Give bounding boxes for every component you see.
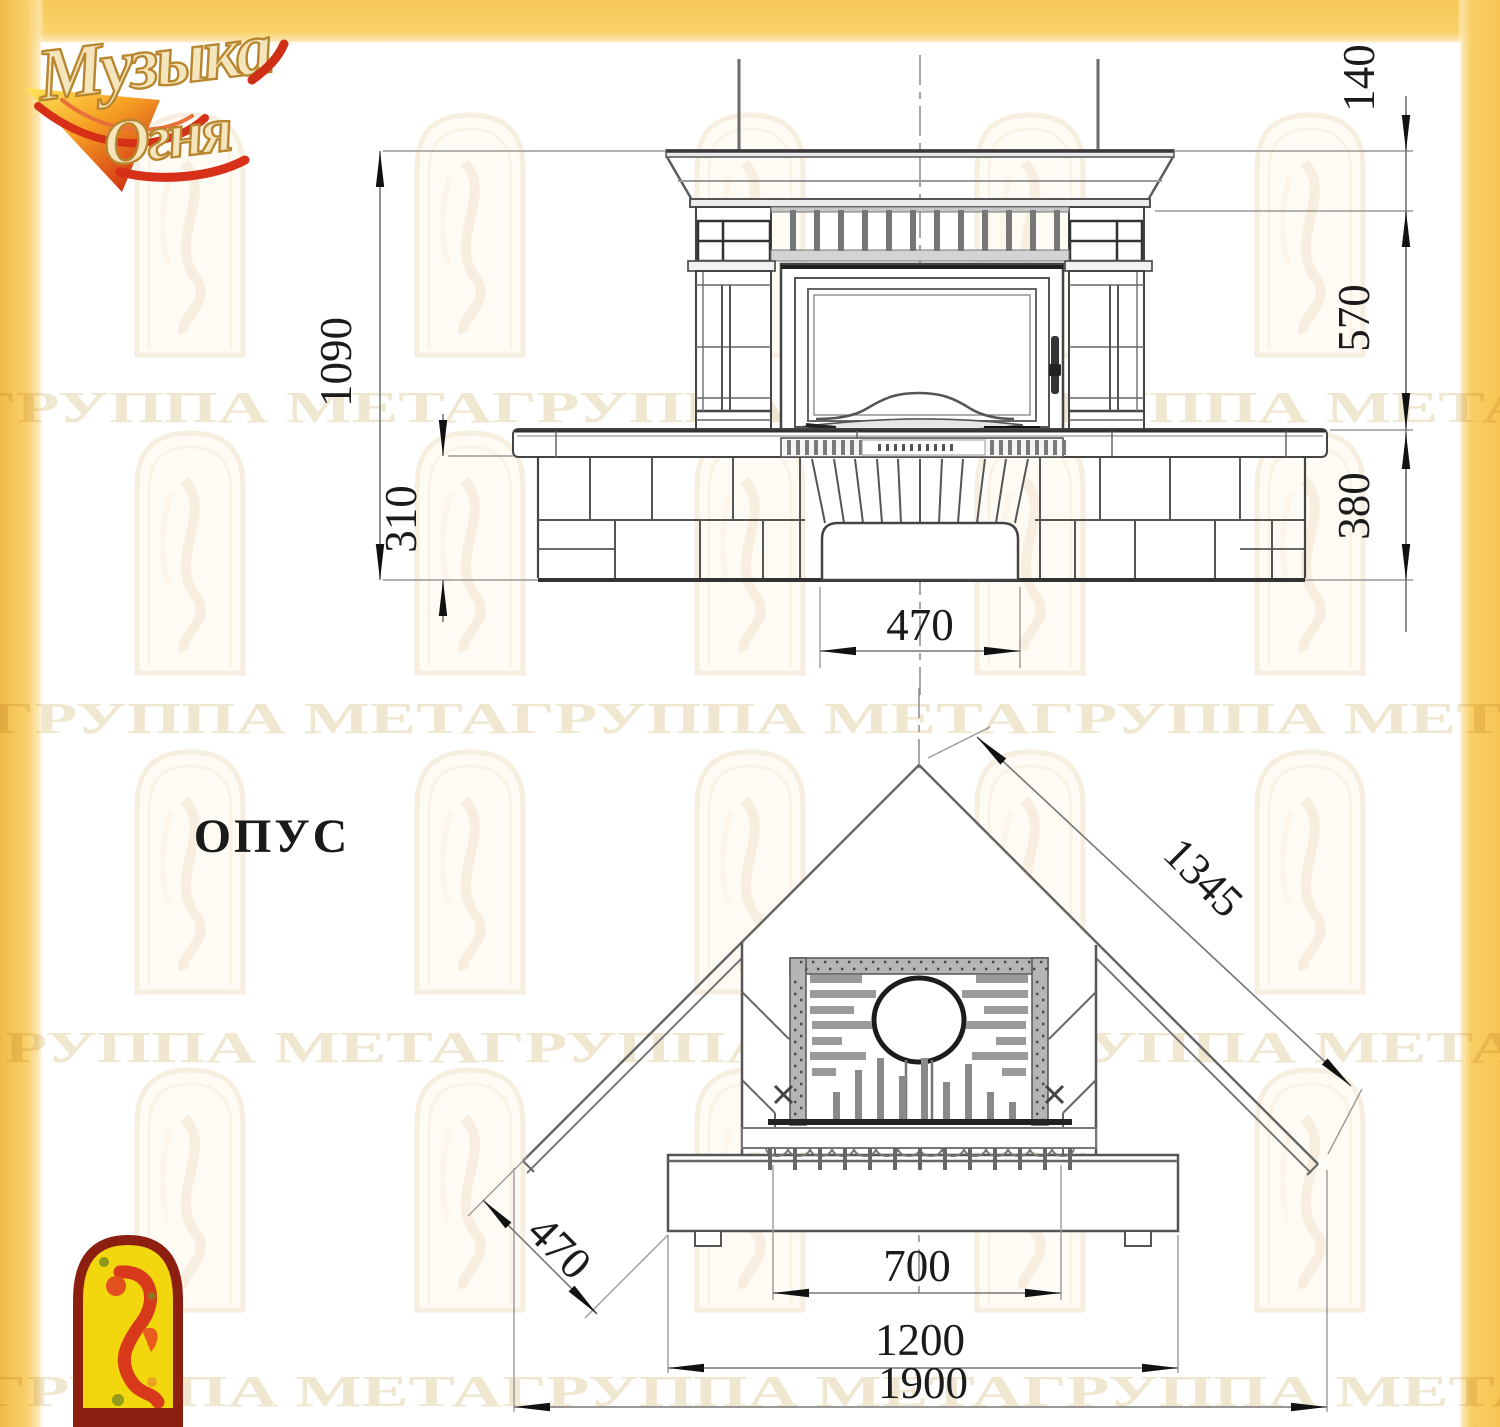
svg-text:140: 140 (1334, 44, 1384, 112)
svg-text:470: 470 (886, 600, 954, 650)
svg-text:700: 700 (883, 1241, 951, 1291)
svg-text:570: 570 (1329, 284, 1379, 352)
svg-text:ГРУППА МЕТАГРУППА МЕТАГРУППА М: ГРУППА МЕТАГРУППА МЕТАГРУППА МЕТА (0, 1367, 1500, 1416)
svg-text:1900: 1900 (878, 1358, 968, 1408)
svg-text:310: 310 (376, 485, 426, 553)
svg-text:ГРУППА МЕТАГРУППА МЕТАГРУППА М: ГРУППА МЕТАГРУППА МЕТАГРУППА МЕТА (0, 694, 1500, 743)
svg-text:ОПУС: ОПУС (194, 810, 351, 863)
svg-text:380: 380 (1329, 472, 1379, 540)
svg-text:1090: 1090 (311, 317, 361, 407)
